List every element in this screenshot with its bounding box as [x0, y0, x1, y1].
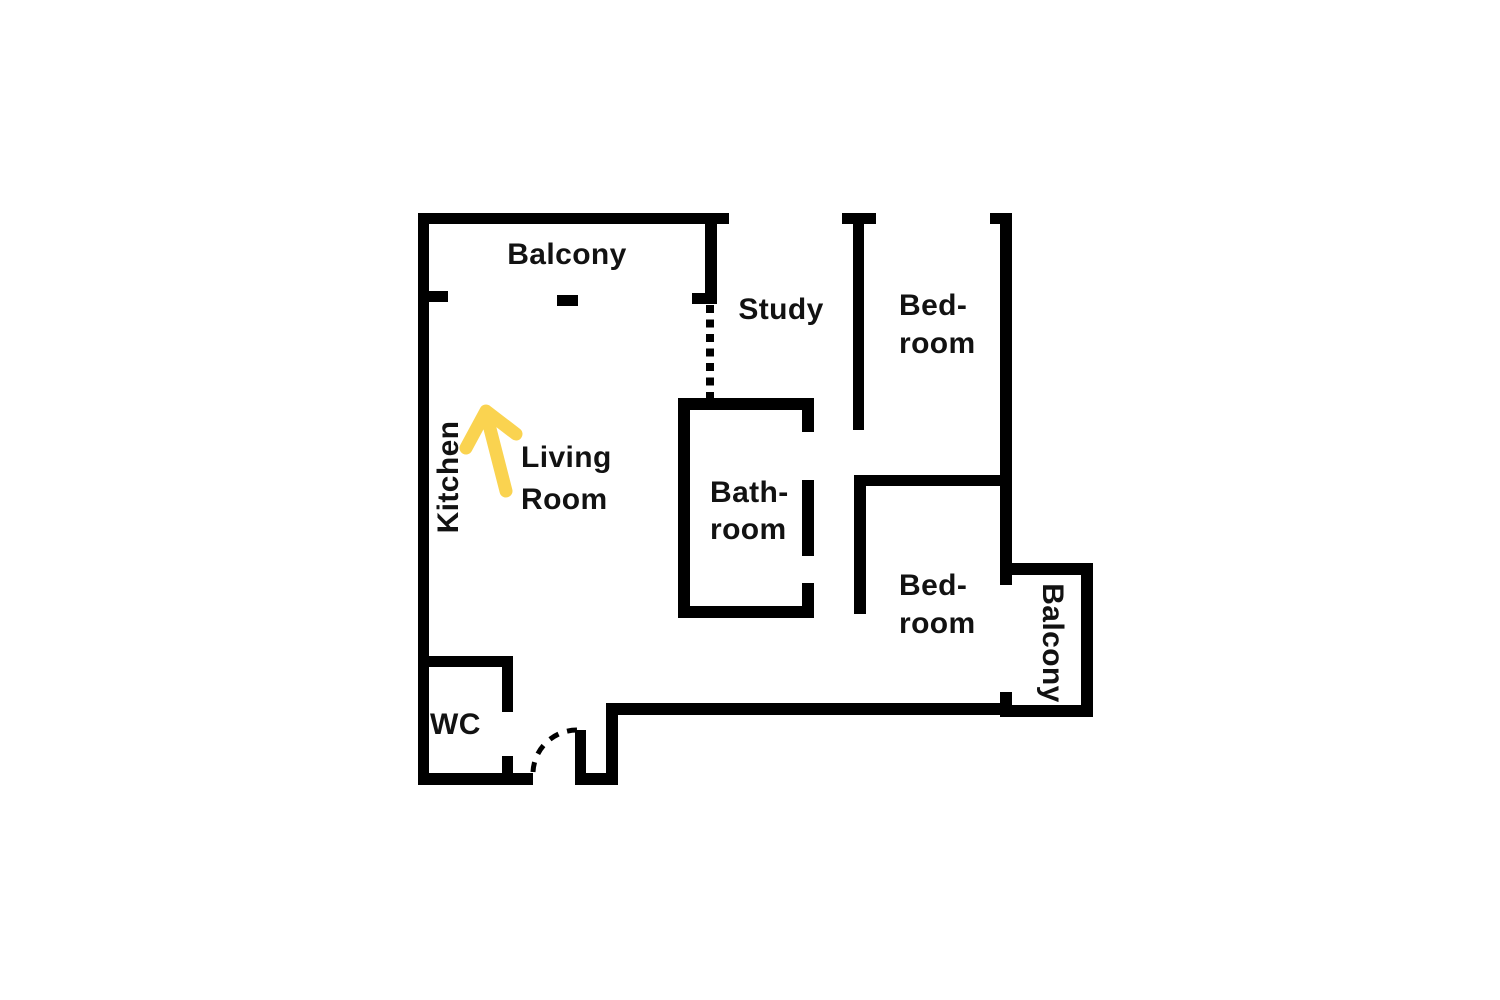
wall-balcony-right — [705, 213, 717, 304]
room-label-study: Study — [738, 291, 823, 329]
wall-bedroom-divider-v — [854, 475, 866, 614]
room-label-balcony-top: Balcony — [507, 236, 627, 274]
entry-door-swing-arc — [533, 730, 577, 772]
floorplan-canvas: Balcony Study Bed- room Kitchen Living R… — [0, 0, 1500, 1000]
wall-bathroom-left — [678, 398, 690, 618]
wall-bathroom-bottom — [678, 606, 814, 618]
wall-bathroom-top — [678, 398, 814, 410]
wall-balcony2-right — [1081, 563, 1093, 717]
wall-wc-right-2 — [502, 756, 513, 785]
wall-wc-top — [418, 656, 513, 667]
wall-wc-right-1 — [502, 656, 513, 712]
wall-bottom-left — [418, 773, 533, 785]
wall-study-divider — [853, 213, 864, 430]
room-label-kitchen: Kitchen — [430, 421, 468, 534]
wall-bedroom-divider-h — [854, 475, 1012, 486]
wall-bathroom-right-2 — [802, 480, 814, 556]
wall-right — [1000, 213, 1012, 585]
room-label-living-room: Living Room — [521, 437, 612, 521]
room-label-wc: WC — [430, 706, 481, 744]
wall-top — [418, 213, 729, 224]
room-label-bathroom: Bath- room — [710, 474, 789, 548]
room-label-balcony-right: Balcony — [1033, 583, 1071, 703]
wall-entry-right — [575, 730, 586, 785]
wall-balcony2-bottom — [1000, 705, 1093, 717]
room-label-bedroom-bottom: Bed- room — [899, 567, 976, 643]
wall-bottom-main — [607, 703, 1012, 715]
wall-balcony-right-foot — [692, 293, 717, 304]
wall-entry-step — [606, 703, 618, 785]
wall-left — [418, 213, 429, 785]
room-label-bedroom-top: Bed- room — [899, 287, 976, 363]
wall-bathroom-right-3 — [802, 583, 814, 618]
wall-balcony-left-tick — [429, 291, 448, 302]
wall-balcony2-top — [1012, 563, 1082, 575]
up-arrow-icon — [466, 411, 516, 491]
wall-bathroom-right-1 — [802, 398, 814, 432]
wall-balcony-middle-dash — [557, 295, 578, 306]
